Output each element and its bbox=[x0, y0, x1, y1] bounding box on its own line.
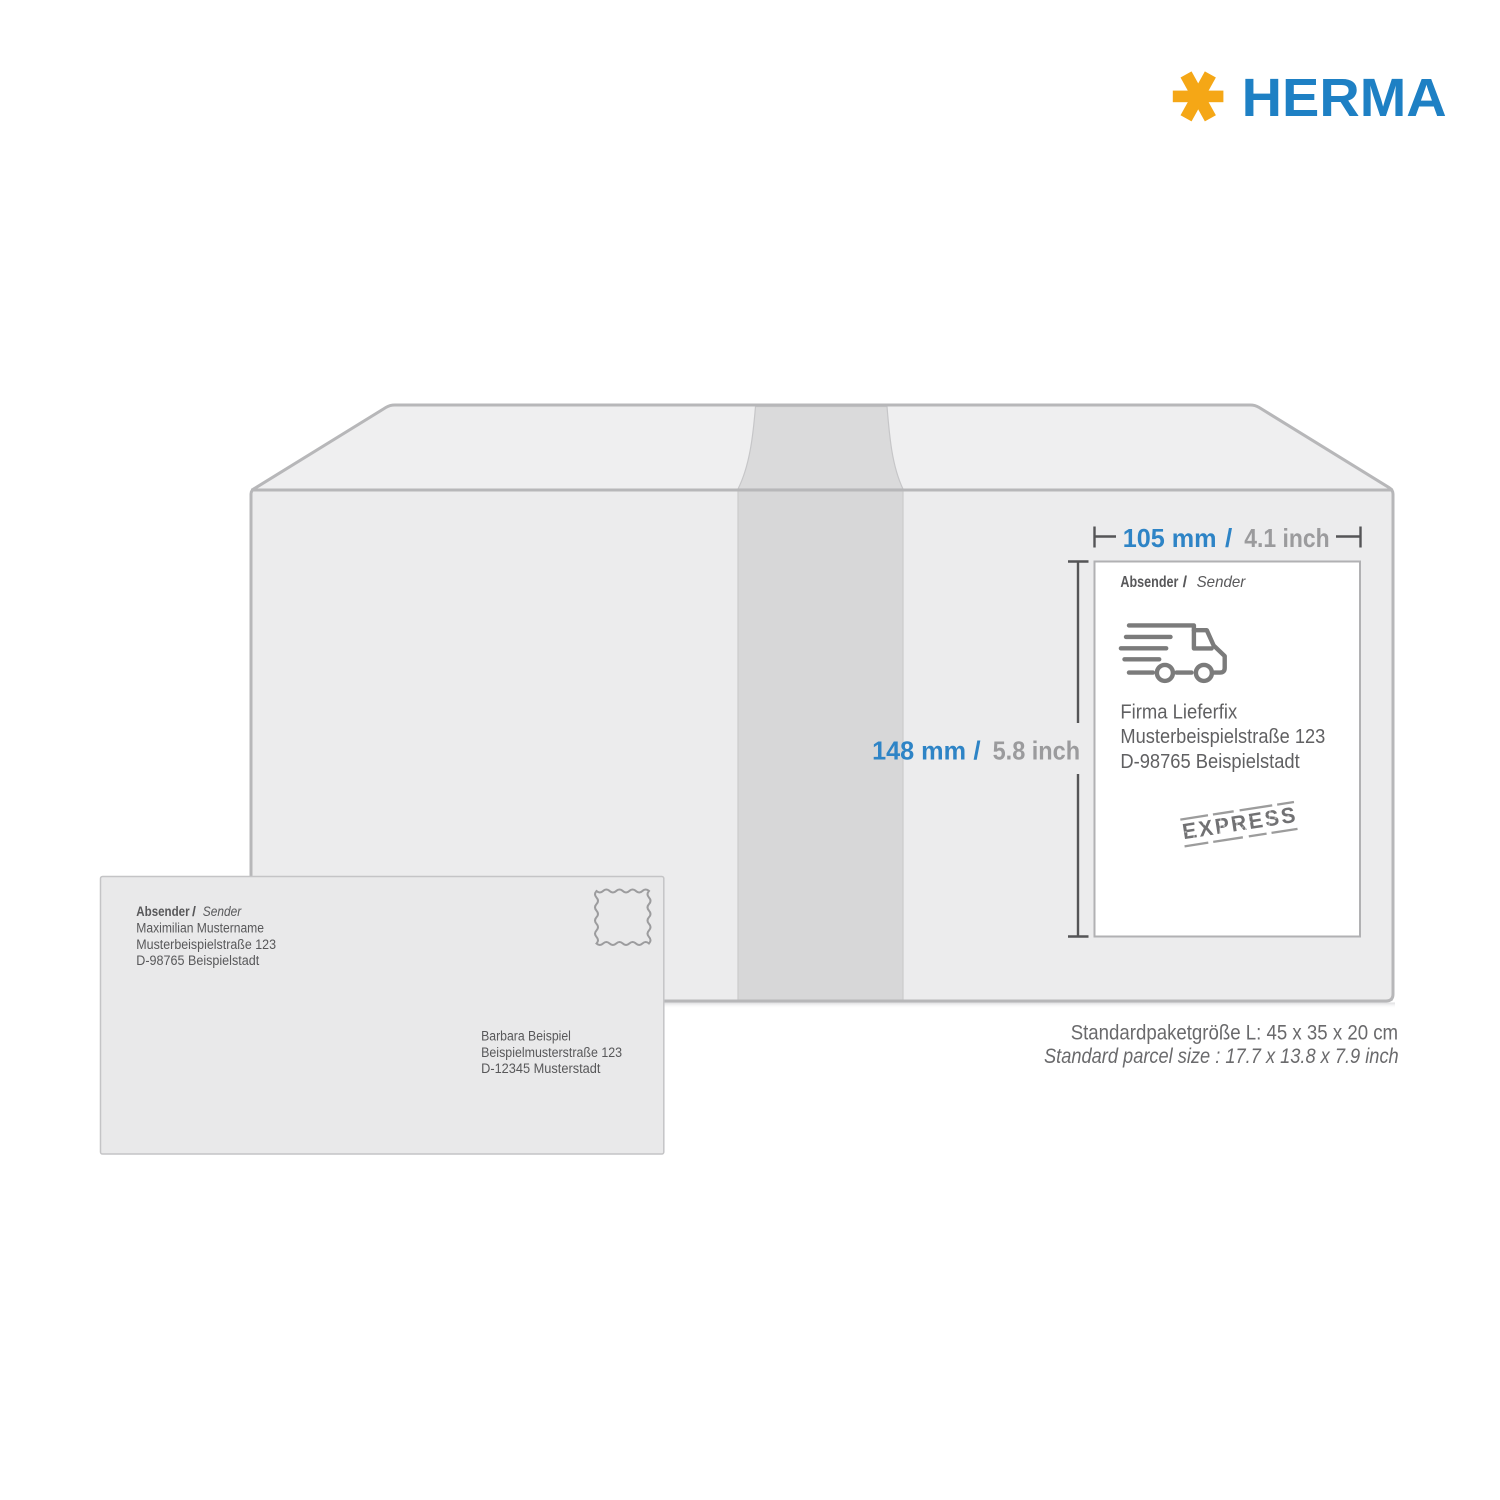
svg-text:Barbara Beispiel: Barbara Beispiel bbox=[481, 1029, 571, 1045]
svg-text:Standardpaketgröße L: 45 x 35: Standardpaketgröße L: 45 x 35 x 20 cm bbox=[1071, 1022, 1398, 1045]
svg-text:/: / bbox=[1225, 523, 1232, 553]
svg-text:/: / bbox=[192, 904, 196, 920]
svg-text:/: / bbox=[973, 736, 980, 766]
svg-text:Standard parcel size : 17.7 x: Standard parcel size : 17.7 x 13.8 x 7.9… bbox=[1044, 1045, 1399, 1068]
svg-text:5.8 inch: 5.8 inch bbox=[993, 736, 1081, 766]
svg-text:Absender: Absender bbox=[136, 904, 190, 920]
svg-text:Beispielmusterstraße 123: Beispielmusterstraße 123 bbox=[481, 1045, 622, 1061]
svg-text:105 mm: 105 mm bbox=[1123, 523, 1217, 553]
svg-text:Firma Lieferfix: Firma Lieferfix bbox=[1120, 700, 1237, 723]
svg-text:Sender: Sender bbox=[1197, 574, 1246, 591]
svg-text:Absender: Absender bbox=[1120, 574, 1178, 591]
svg-text:Maximilian Mustername: Maximilian Mustername bbox=[136, 921, 264, 937]
svg-text:4.1 inch: 4.1 inch bbox=[1244, 523, 1329, 553]
svg-text:/: / bbox=[1183, 574, 1188, 591]
svg-text:Sender: Sender bbox=[203, 904, 242, 920]
svg-text:D-98765 Beispielstadt: D-98765 Beispielstadt bbox=[136, 953, 259, 969]
svg-text:Musterbeispielstraße 123: Musterbeispielstraße 123 bbox=[1120, 725, 1325, 748]
svg-text:Musterbeispielstraße 123: Musterbeispielstraße 123 bbox=[136, 937, 276, 953]
svg-text:D-98765 Beispielstadt: D-98765 Beispielstadt bbox=[1120, 750, 1300, 773]
svg-text:HERMA: HERMA bbox=[1242, 69, 1447, 128]
svg-text:148 mm: 148 mm bbox=[872, 736, 966, 766]
svg-text:D-12345 Musterstadt: D-12345 Musterstadt bbox=[481, 1061, 600, 1077]
